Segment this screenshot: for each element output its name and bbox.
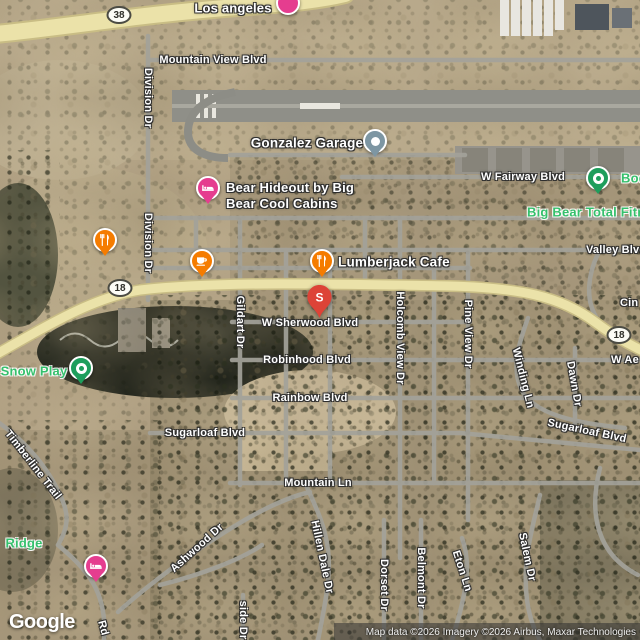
poi-label-big-bear-total-fitness[interactable]: Big Bear Total Fitne [527, 205, 640, 220]
road-label-holcomb-view-dr: Holcomb View Dr [394, 291, 406, 384]
road-label-gildart-dr: Gildart Dr [234, 296, 246, 349]
road-label-sugarloaf-blvd-west: Sugarloaf Blvd [165, 427, 245, 439]
fork-knife-icon [315, 254, 329, 268]
fork-knife-icon [98, 233, 112, 247]
coffee-cup-icon [195, 254, 209, 268]
road-label-pine-view-dr: Pine View Dr [462, 300, 474, 369]
bed-icon [89, 559, 103, 573]
road-label-side-dr: side Dr [237, 601, 249, 640]
road-label-mountain-ln: Mountain Ln [284, 477, 352, 489]
road-label-division-dr-1: Division Dr [142, 68, 154, 128]
poi-label-bodf[interactable]: Bodf [621, 171, 640, 186]
place-marker-bodf[interactable] [586, 166, 610, 190]
google-logo[interactable]: Google [9, 611, 75, 634]
road-label-valley-blvd: Valley Blvd [586, 244, 640, 256]
road-label-mountain-view-blvd: Mountain View Blvd [159, 54, 266, 66]
garage-marker-gonzalez[interactable] [363, 129, 387, 153]
lodging-marker-south[interactable] [84, 554, 108, 578]
pin-letter: S [315, 291, 323, 305]
bed-icon [201, 181, 215, 195]
restaurant-marker-lumberjack[interactable] [310, 249, 334, 273]
road-label-dorset-dr: Dorset Dr [378, 559, 390, 611]
route-badge-18-east: 18 [607, 326, 632, 344]
ring-dot-icon [76, 363, 87, 374]
road-label-belmont-dr: Belmont Dr [415, 547, 427, 608]
road-label-w-fairway-blvd: W Fairway Blvd [481, 171, 565, 183]
poi-label-ridge[interactable]: Ridge [5, 536, 42, 551]
map-canvas[interactable]: Los angeles Mountain View Blvd Division … [0, 0, 640, 640]
poi-label-bear-hideout[interactable]: Bear Hideout by Big Bear Cool Cabins [226, 180, 362, 212]
search-result-pin[interactable]: S [306, 284, 333, 319]
route-badge-18-west: 18 [108, 279, 133, 297]
cafe-marker[interactable] [190, 249, 214, 273]
ring-dot-icon [593, 173, 604, 184]
poi-label-lumberjack-cafe[interactable]: Lumberjack Cafe [338, 255, 450, 270]
road-label-cin: Cin [620, 297, 638, 309]
place-marker-snow-play[interactable] [69, 356, 93, 380]
lodging-marker-bear-hideout[interactable] [196, 176, 220, 200]
road-label-los-angeles: Los angeles [194, 1, 271, 16]
poi-label-gonzalez-garage[interactable]: Gonzalez Garage [251, 136, 364, 151]
road-label-robinhood-blvd: Robinhood Blvd [263, 354, 351, 366]
restaurant-marker-west[interactable] [93, 228, 117, 252]
road-label-division-dr-2: Division Dr [142, 213, 154, 273]
route-badge-38: 38 [107, 6, 132, 24]
dot-icon [371, 137, 380, 146]
attribution-text: Map data ©2026 Imagery ©2026 Airbus, Max… [366, 627, 636, 638]
poi-label-snow-play[interactable]: Snow Play [1, 364, 68, 379]
road-label-w-ae: W Ae [611, 354, 639, 366]
road-label-rainbow-blvd: Rainbow Blvd [272, 392, 347, 404]
